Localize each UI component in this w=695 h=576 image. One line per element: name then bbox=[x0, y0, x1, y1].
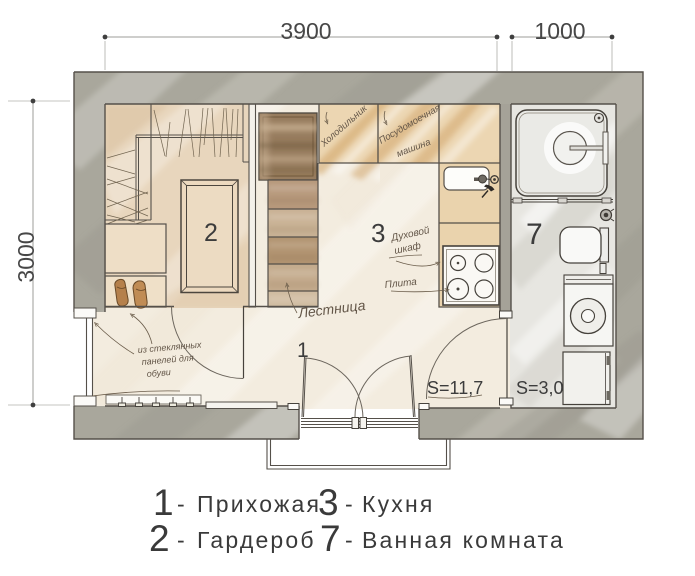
svg-text:-: - bbox=[177, 527, 187, 553]
svg-text:3: 3 bbox=[371, 218, 385, 248]
svg-text:7: 7 bbox=[320, 518, 341, 559]
svg-text:S=3,0: S=3,0 bbox=[516, 378, 564, 398]
svg-text:Кухня: Кухня bbox=[362, 491, 435, 517]
svg-text:-: - bbox=[345, 491, 355, 517]
svg-text:1: 1 bbox=[297, 339, 309, 362]
svg-text:1: 1 bbox=[153, 482, 174, 523]
svg-text:2: 2 bbox=[149, 518, 170, 559]
svg-text:S=11,7: S=11,7 bbox=[427, 378, 483, 398]
svg-text:1000: 1000 bbox=[534, 18, 585, 44]
svg-text:3: 3 bbox=[318, 482, 339, 523]
svg-text:7: 7 bbox=[526, 218, 543, 251]
svg-text:3900: 3900 bbox=[280, 18, 331, 44]
svg-text:Гардероб: Гардероб bbox=[197, 527, 316, 553]
svg-text:-: - bbox=[345, 527, 355, 553]
svg-text:-: - bbox=[177, 491, 187, 517]
svg-text:Прихожая: Прихожая bbox=[197, 491, 321, 517]
svg-text:обуви: обуви bbox=[146, 367, 171, 379]
svg-text:Ванная комната: Ванная комната bbox=[362, 527, 565, 553]
svg-text:3000: 3000 bbox=[13, 231, 39, 282]
svg-text:2: 2 bbox=[204, 219, 218, 247]
